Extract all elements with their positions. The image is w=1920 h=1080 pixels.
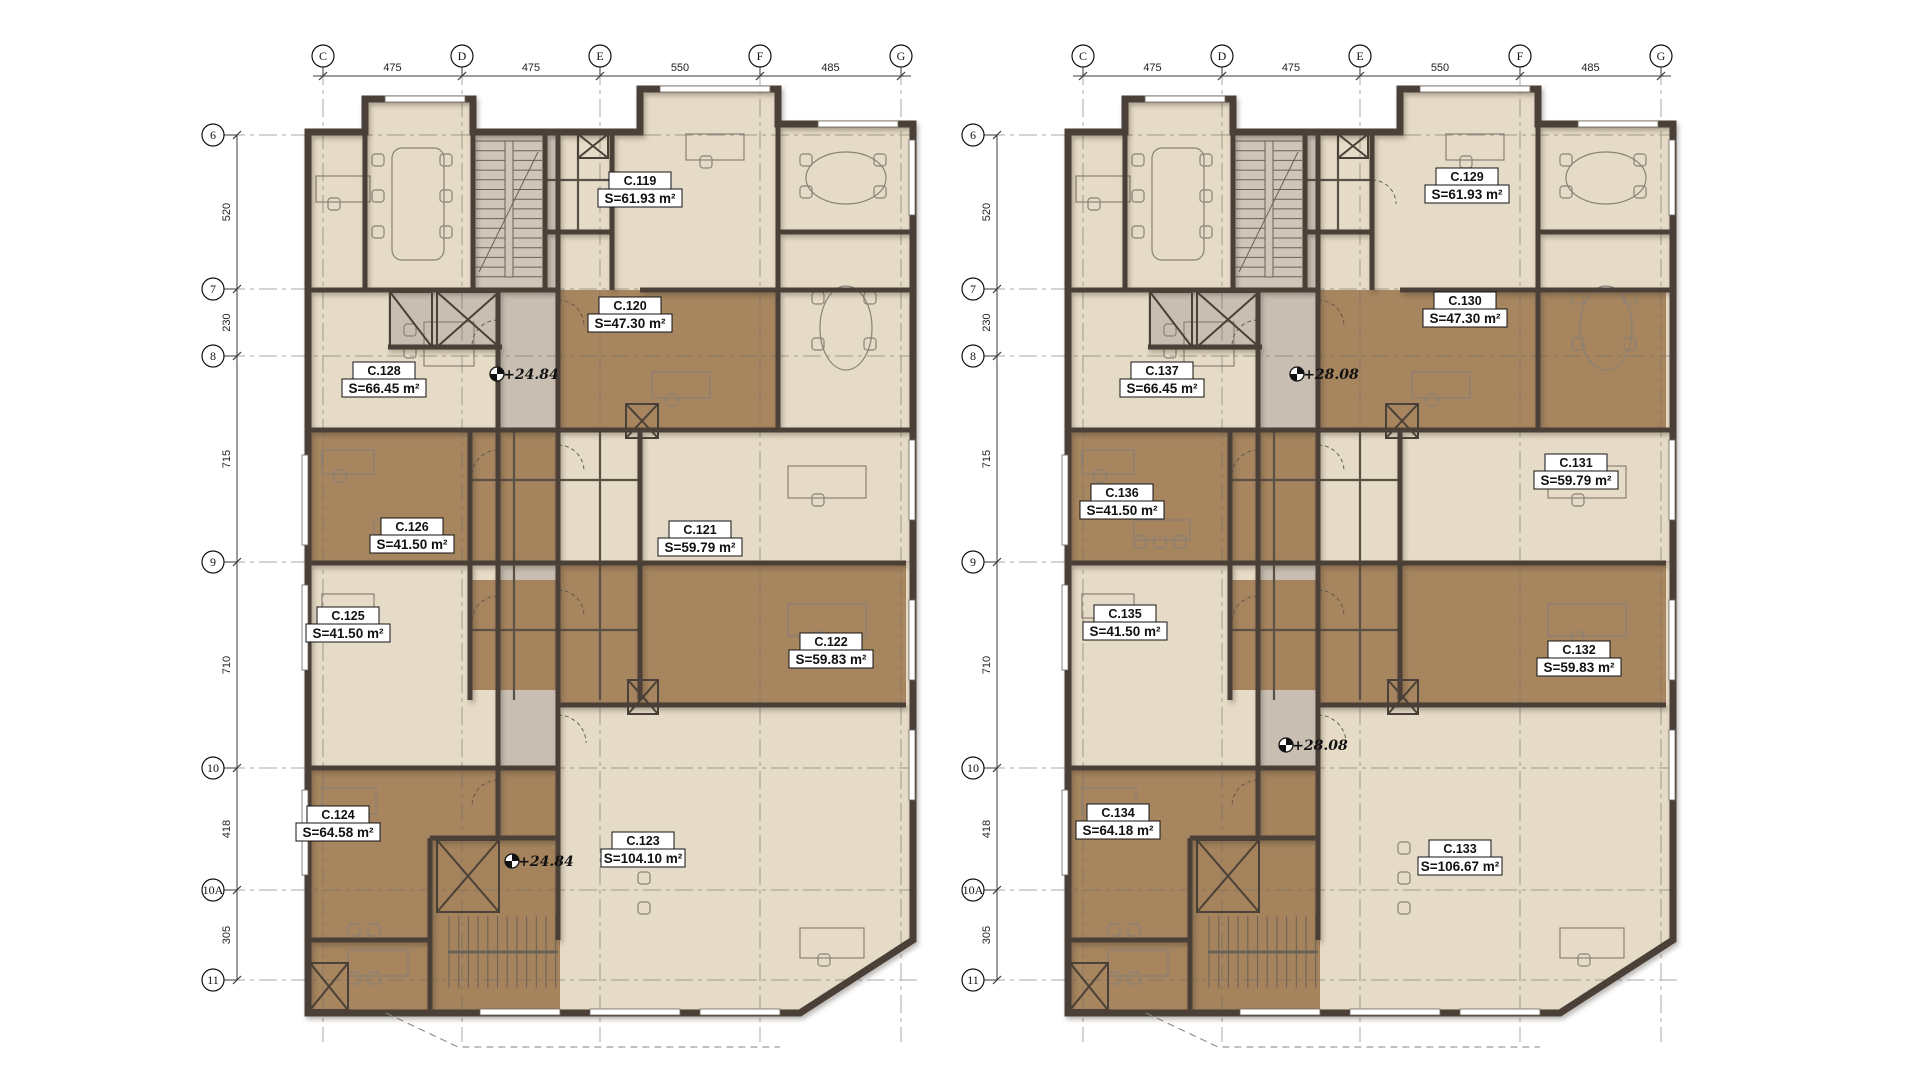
room-label-C.133: C.133S=106.67 m² [1418, 840, 1502, 875]
dim-value: 305 [221, 926, 233, 944]
room-label-C.128: C.128S=66.45 m² [342, 362, 426, 397]
svg-text:10: 10 [967, 761, 979, 775]
room-area: S=41.50 m² [1090, 624, 1161, 639]
room-label-C.136: C.136S=41.50 m² [1080, 484, 1164, 519]
room-label-C.137: C.137S=66.45 m² [1120, 362, 1204, 397]
svg-text:9: 9 [970, 555, 976, 569]
dim-value: 305 [981, 926, 993, 944]
room-area: S=47.30 m² [1430, 311, 1501, 326]
room-area: S=59.83 m² [796, 652, 867, 667]
room-number: C.121 [683, 523, 716, 537]
room-label-C.129: C.129S=61.93 m² [1425, 168, 1509, 203]
svg-text:6: 6 [210, 128, 216, 142]
dim-value: 550 [671, 62, 689, 74]
dim-value: 475 [1143, 62, 1161, 74]
svg-text:7: 7 [970, 282, 976, 296]
dim-value: 230 [221, 313, 233, 331]
svg-text:D: D [1218, 49, 1227, 63]
room-label-C.119: C.119S=61.93 m² [598, 172, 682, 207]
elevation-value: +28.08 [1292, 738, 1348, 754]
svg-text:8: 8 [210, 349, 216, 363]
room-area: S=41.50 m² [377, 537, 448, 552]
room-area: S=59.79 m² [1541, 473, 1612, 488]
floor-plan-sheet: C.119S=61.93 m²C.120S=47.30 m²C.128S=66.… [0, 0, 1920, 1080]
room-area: S=61.93 m² [1432, 187, 1503, 202]
room-area: S=47.30 m² [595, 316, 666, 331]
room-label-C.120: C.120S=47.30 m² [588, 297, 672, 332]
dim-value: 230 [981, 313, 993, 331]
svg-text:C: C [319, 49, 327, 63]
room-number: C.136 [1105, 486, 1138, 500]
svg-text:E: E [596, 49, 603, 63]
svg-text:10A: 10A [203, 883, 224, 897]
room-area: S=64.58 m² [303, 825, 374, 840]
dim-value: 710 [981, 656, 993, 674]
elevation-marker: +24.84 [490, 367, 559, 383]
floor-plan-canvas: C.119S=61.93 m²C.120S=47.30 m²C.128S=66.… [0, 0, 1920, 1080]
brown-room-fill [558, 290, 778, 432]
dim-value: 475 [1282, 62, 1300, 74]
dim-value: 485 [1581, 62, 1599, 74]
elevation-value: +24.84 [503, 367, 559, 383]
dim-value: 418 [221, 820, 233, 838]
room-label-C.132: C.132S=59.83 m² [1537, 641, 1621, 676]
room-number: C.120 [613, 299, 646, 313]
svg-text:G: G [897, 49, 906, 63]
room-area: S=41.50 m² [313, 626, 384, 641]
svg-text:10A: 10A [963, 883, 984, 897]
room-area: S=64.18 m² [1083, 823, 1154, 838]
room-number: C.125 [331, 609, 364, 623]
svg-text:6: 6 [970, 128, 976, 142]
svg-text:9: 9 [210, 555, 216, 569]
room-label-C.135: C.135S=41.50 m² [1083, 605, 1167, 640]
elevation-value: +28.08 [1303, 367, 1359, 383]
brown-room-fill [1318, 563, 1666, 703]
room-label-C.125: C.125S=41.50 m² [306, 607, 390, 642]
room-area: S=104.10 m² [604, 851, 683, 866]
svg-text:C: C [1079, 49, 1087, 63]
dim-value: 550 [1431, 62, 1449, 74]
svg-text:10: 10 [207, 761, 219, 775]
room-label-C.130: C.130S=47.30 m² [1423, 292, 1507, 327]
room-area: S=66.45 m² [349, 381, 420, 396]
elevation-marker: +24.84 [505, 854, 574, 870]
room-label-C.124: C.124S=64.58 m² [296, 806, 380, 841]
svg-text:D: D [458, 49, 467, 63]
room-number: C.123 [626, 834, 659, 848]
row-grid-left: 67891010A11520230715710418305 [202, 124, 241, 991]
svg-text:F: F [757, 49, 764, 63]
column-grid-left: CDEFG475475550485 [312, 45, 912, 80]
room-number: C.134 [1101, 806, 1134, 820]
svg-text:F: F [1517, 49, 1524, 63]
dim-value: 715 [981, 450, 993, 468]
room-label-C.131: C.131S=59.79 m² [1534, 454, 1618, 489]
svg-text:11: 11 [967, 973, 979, 987]
room-number: C.129 [1450, 170, 1483, 184]
svg-text:G: G [1657, 49, 1666, 63]
room-area: S=106.67 m² [1421, 859, 1500, 874]
column-grid-right: CDEFG475475550485 [1072, 45, 1672, 80]
dim-value: 475 [383, 62, 401, 74]
elevation-marker: +28.08 [1279, 738, 1348, 754]
svg-text:8: 8 [970, 349, 976, 363]
room-number: C.119 [624, 174, 657, 188]
svg-text:E: E [1356, 49, 1363, 63]
svg-text:7: 7 [210, 282, 216, 296]
dim-value: 485 [821, 62, 839, 74]
room-number: C.122 [814, 635, 847, 649]
room-label-C.126: C.126S=41.50 m² [370, 518, 454, 553]
dim-value: 475 [522, 62, 540, 74]
room-area: S=59.83 m² [1544, 660, 1615, 675]
elevation-marker: +28.08 [1290, 367, 1359, 383]
elevation-value: +24.84 [518, 854, 574, 870]
room-number: C.137 [1145, 364, 1178, 378]
dim-value: 418 [981, 820, 993, 838]
room-number: C.135 [1108, 607, 1141, 621]
room-number: C.131 [1559, 456, 1592, 470]
dim-value: 715 [221, 450, 233, 468]
room-number: C.124 [321, 808, 354, 822]
svg-text:11: 11 [207, 973, 219, 987]
row-grid-right: 67891010A11520230715710418305 [962, 124, 1001, 991]
room-area: S=59.79 m² [665, 540, 736, 555]
room-area: S=41.50 m² [1087, 503, 1158, 518]
canopy-line [1146, 1013, 1540, 1047]
plan-right [987, 67, 1682, 1047]
plan-left [227, 67, 922, 1047]
room-label-C.121: C.121S=59.79 m² [658, 521, 742, 556]
canopy-line [386, 1013, 780, 1047]
room-number: C.126 [395, 520, 428, 534]
room-label-C.123: C.123S=104.10 m² [601, 832, 685, 867]
dim-value: 520 [981, 203, 993, 221]
room-number: C.133 [1443, 842, 1476, 856]
room-number: C.132 [1562, 643, 1595, 657]
dim-value: 710 [221, 656, 233, 674]
room-number: C.128 [367, 364, 400, 378]
room-area: S=61.93 m² [605, 191, 676, 206]
room-area: S=66.45 m² [1127, 381, 1198, 396]
room-number: C.130 [1448, 294, 1481, 308]
dim-value: 520 [221, 203, 233, 221]
room-label-C.122: C.122S=59.83 m² [789, 633, 873, 668]
room-label-C.134: C.134S=64.18 m² [1076, 804, 1160, 839]
